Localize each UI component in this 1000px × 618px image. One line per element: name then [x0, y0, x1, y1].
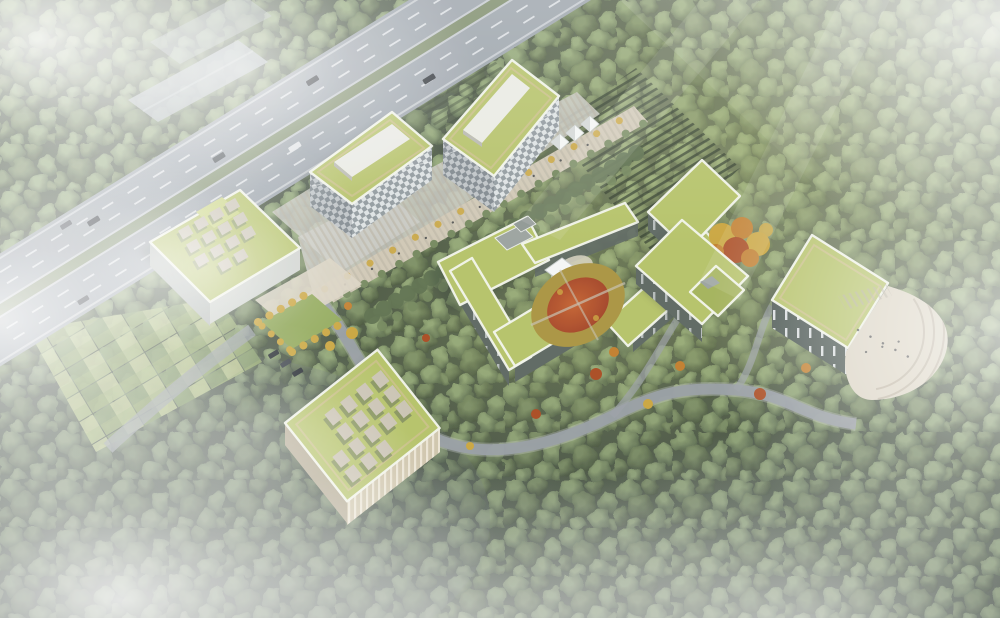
fog-overlay — [0, 0, 1000, 618]
aerial-rendering — [0, 0, 1000, 618]
rendering-canvas — [0, 0, 1000, 618]
